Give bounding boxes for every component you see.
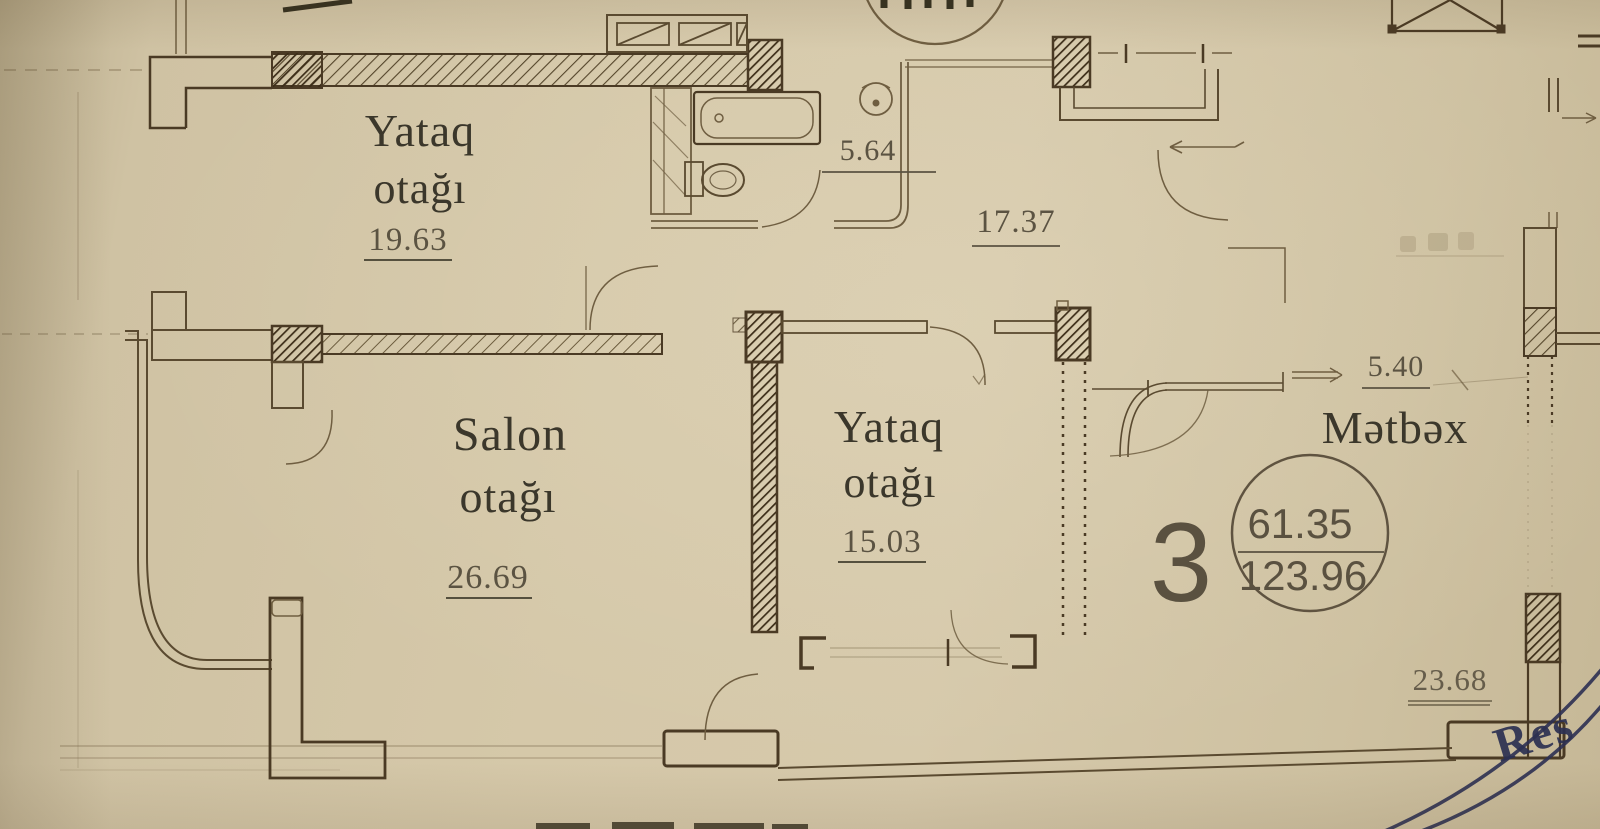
wall-pillar-entrance <box>1053 37 1090 87</box>
cropped-circle-text-fragments <box>884 0 970 9</box>
bedroom-top-label-line1: Yataq <box>365 105 475 156</box>
salon-area: 26.69 <box>447 559 529 596</box>
door-arc-bathroom <box>762 170 820 227</box>
underline <box>1408 701 1492 705</box>
entry-arrow-icon <box>1170 141 1244 153</box>
hall-step <box>1228 248 1285 303</box>
window-bar-2 <box>995 321 1056 333</box>
apartment-area-living: 61.35 <box>1247 500 1352 547</box>
kitchen-label: Mətbəx <box>1322 402 1469 453</box>
wall-plumbing-strip <box>651 88 758 228</box>
wall-column-bottomleft <box>270 598 385 778</box>
door-arc-stub <box>286 410 332 464</box>
window-bar-1 <box>782 321 927 333</box>
salon-label-line1: Salon <box>453 408 567 461</box>
elevator-symbol <box>1392 0 1502 31</box>
salon-label-line2: otağı <box>460 471 557 522</box>
wall-pillar-hall <box>1056 308 1090 360</box>
door-arc-balcony-right <box>951 610 1008 664</box>
wall-top-band-dense <box>272 52 322 88</box>
walls <box>125 0 1600 780</box>
wall-center-vertical <box>752 362 777 632</box>
wall-notch-center <box>733 318 746 332</box>
wall-top-band <box>272 54 748 86</box>
bathtub-symbol <box>694 92 820 144</box>
dim-hallway: 17.37 <box>976 204 1055 240</box>
wall-kitchen-corner <box>1092 372 1283 457</box>
door-mark-bedroom-mid <box>973 374 985 384</box>
bedroom-top-area: 19.63 <box>368 222 447 258</box>
dim-bathroom: 5.64 <box>840 134 897 167</box>
door-arc-kitchen <box>1110 390 1208 456</box>
wall-pillar-center <box>746 312 782 362</box>
cut-text-bottom-edge <box>536 822 808 829</box>
balcony-structures <box>664 636 1564 780</box>
door-arc-bedroom-top <box>590 266 658 330</box>
door-arc-bedroom-mid <box>930 327 985 385</box>
apartment-number: 3 <box>1150 500 1212 625</box>
dim-kitchen-niche: 5.40 <box>1368 350 1425 383</box>
dim-balcony: 23.68 <box>1413 662 1488 697</box>
bedroom-mid-label-line1: Yataq <box>834 401 944 452</box>
dotted-projection-center <box>1063 362 1085 640</box>
bedroom-mid-label-line2: otağı <box>844 458 937 507</box>
sink-symbol <box>860 83 892 115</box>
floorplan-canvas: Yataq otağı 19.63 Salon otağı 26.69 Yata… <box>0 0 1600 829</box>
ghost-print-smudges <box>1396 232 1504 257</box>
wall-hall-top <box>905 60 1052 67</box>
stamp-text: Res <box>1488 698 1581 772</box>
toilet-symbol <box>685 162 744 196</box>
wall-pillar-top <box>748 40 782 90</box>
wardrobe-symbol <box>607 15 747 52</box>
door-arc-entrance <box>1158 150 1228 220</box>
bedroom-top-label-line2: otağı <box>374 164 467 213</box>
stamp: Res <box>1378 664 1600 829</box>
apartment-area-total: 123.96 <box>1239 552 1367 599</box>
bedroom-mid-area: 15.03 <box>842 524 921 560</box>
kitchen-arrow-icon <box>1292 368 1342 382</box>
floorplan-photo: Yataq otağı 19.63 Salon otağı 26.69 Yata… <box>0 0 1600 829</box>
wall-salon-curve <box>125 331 272 669</box>
